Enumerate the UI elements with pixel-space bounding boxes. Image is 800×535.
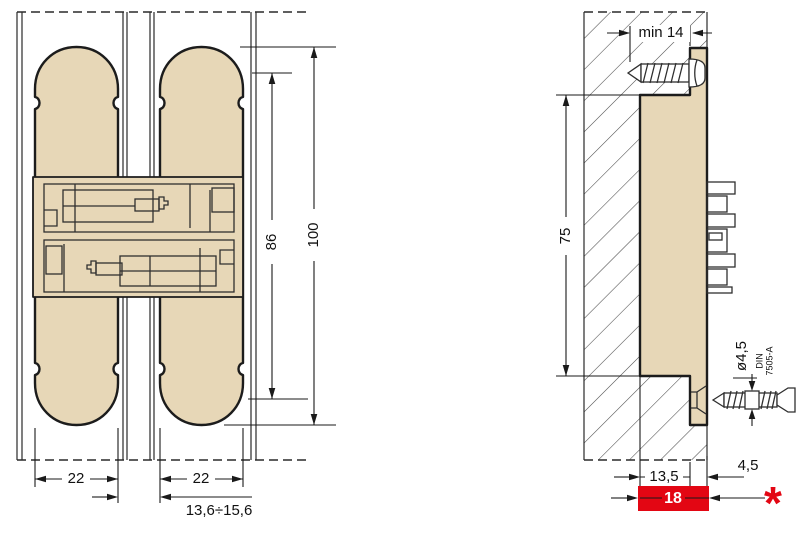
dim-screw-diameter: ø4,5 DIN 7505-A [733, 341, 774, 426]
screw-standard-line1: DIN [754, 353, 764, 369]
dim-body-depth-label: 13,5 [649, 468, 678, 485]
screw-icon [713, 388, 795, 412]
dim-inner-height-label: 86 [263, 234, 280, 251]
hinge-front-view: 22 22 13,6÷15,6 86 [17, 12, 336, 519]
dim-width-left: 22 [35, 428, 118, 503]
dim-min-depth-label: min 14 [638, 24, 683, 41]
dim-gap-range-label: 13,6÷15,6 [186, 502, 253, 519]
hinge-pivot-tabs [707, 182, 735, 293]
hinge-technical-drawing-page: 22 22 13,6÷15,6 86 [0, 0, 800, 535]
hinge-side-view: ø4,5 DIN 7505-A min 14 75 [556, 12, 795, 529]
hinge-technical-drawing: 22 22 13,6÷15,6 86 [0, 0, 800, 535]
dim-gap-range: 13,6÷15,6 [92, 494, 252, 519]
dim-total-depth-label: 18 [664, 490, 682, 507]
dim-inner-height: 86 [248, 73, 308, 399]
hinge-body-section [640, 48, 707, 425]
asterisk-marker: * [764, 477, 782, 529]
dim-body-height-label: 75 [557, 228, 574, 245]
dim-flange-offset-label: 4,5 [738, 457, 759, 474]
screw-standard-line2: 7505-A [764, 346, 774, 375]
dim-front-width-left-label: 22 [68, 470, 85, 487]
dim-width-right: 22 [160, 428, 243, 503]
screw-diameter-label: ø4,5 [733, 341, 750, 371]
dim-total-depth: 18 [611, 486, 765, 511]
dim-total-height-label: 100 [305, 222, 322, 247]
dim-front-width-right-label: 22 [193, 470, 210, 487]
hinge-mechanism [33, 177, 243, 297]
